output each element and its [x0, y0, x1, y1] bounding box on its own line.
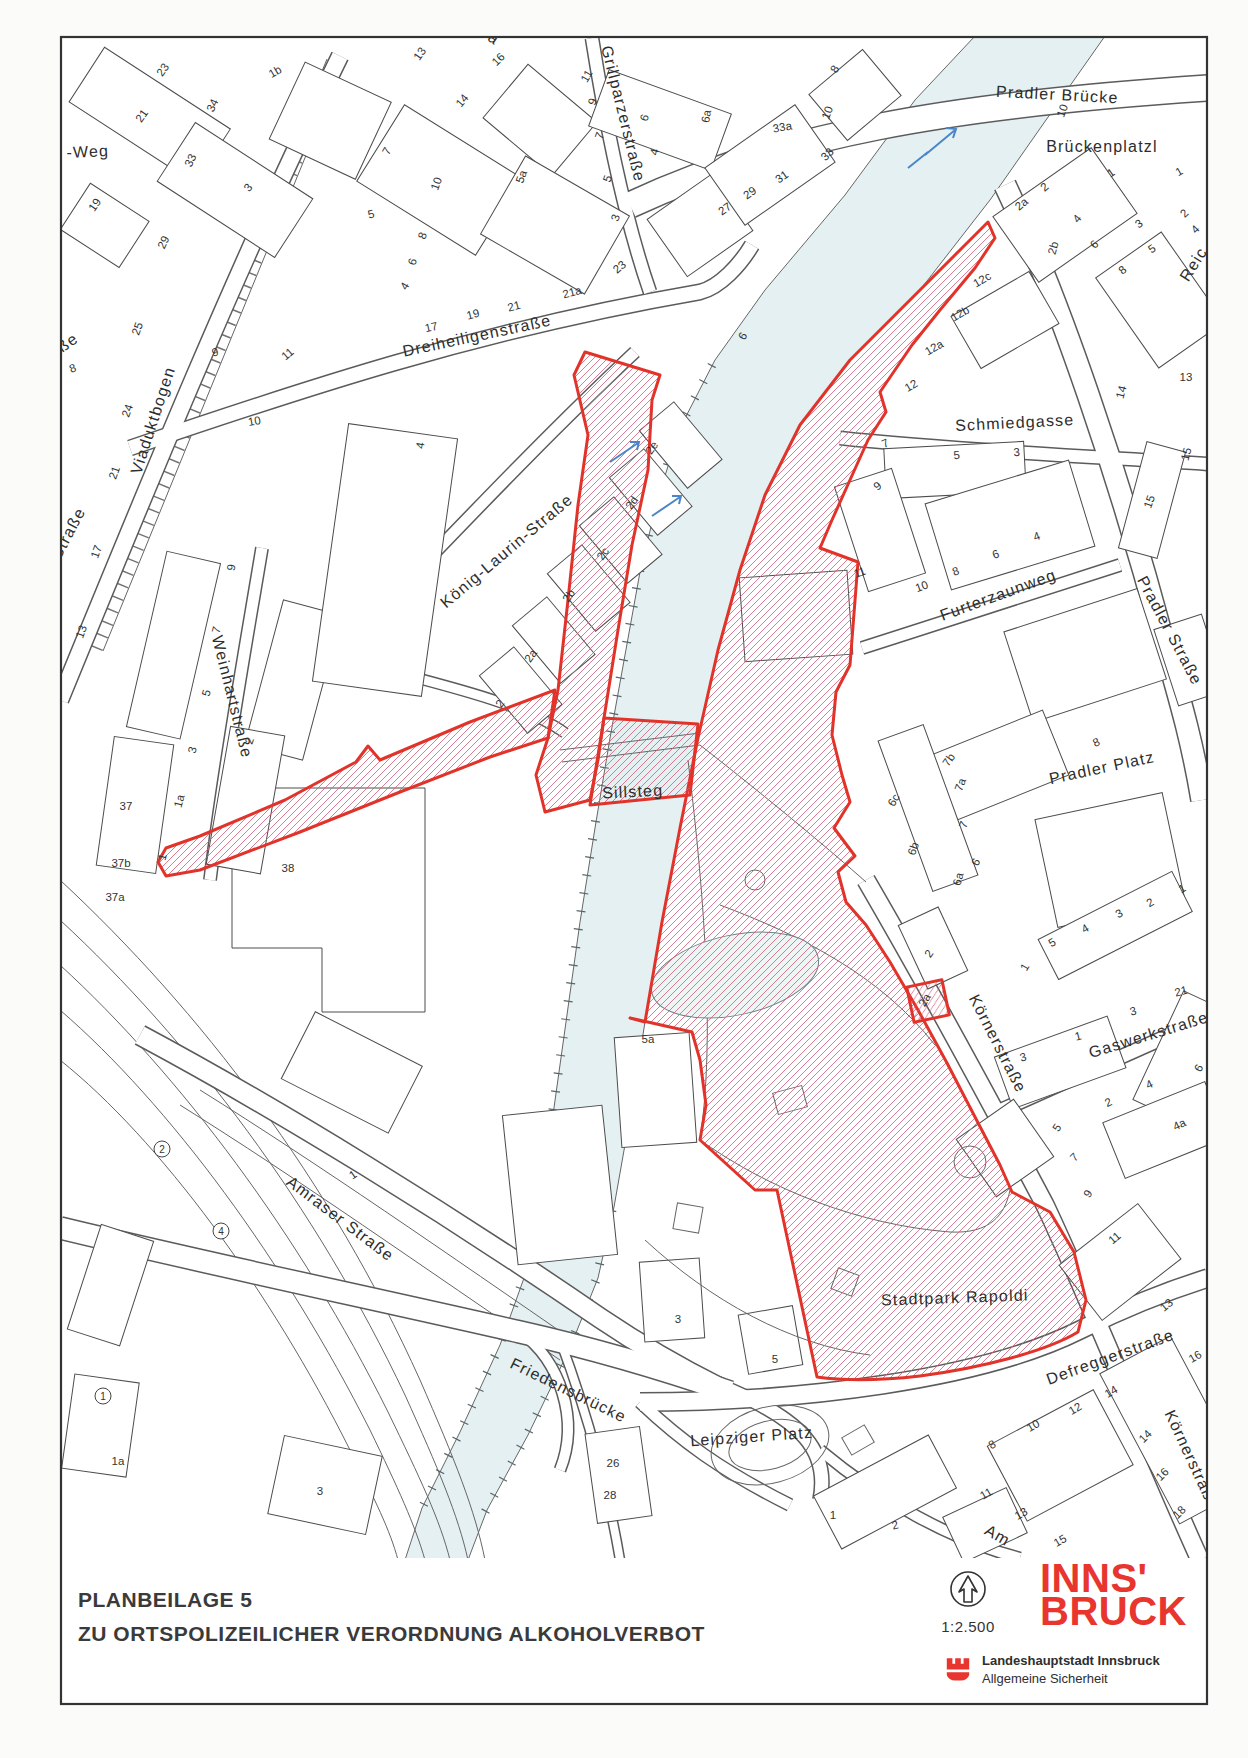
house-number: 5a — [642, 1033, 655, 1045]
plan-title-line2: ZU ORTSPOLIZEILICHER VERORDNUNG ALKOHOLV… — [78, 1622, 705, 1646]
agency-line2: Allgemeine Sicherheit — [982, 1670, 1160, 1688]
agency-text: Landeshauptstadt Innsbruck Allgemeine Si… — [982, 1652, 1160, 1687]
house-number: 3 — [317, 1485, 323, 1497]
street-label: Sillsteg — [602, 781, 664, 801]
street-label: Brückenplatzl — [1046, 138, 1158, 155]
house-number: 28 — [604, 1489, 617, 1501]
city-plan-map: Pradler BrückeBrückenplatzlSchmiedgasseF… — [0, 0, 1248, 1758]
logo-line2: BRUCK — [1040, 1595, 1187, 1628]
house-number: 26 — [607, 1457, 620, 1469]
house-number: 1 — [830, 1509, 836, 1521]
circled-number: 1 — [95, 1388, 111, 1404]
house-number: 5 — [953, 449, 960, 461]
innsbruck-logo: INNS' BRUCK — [1040, 1562, 1187, 1628]
house-number: 37a — [105, 891, 125, 903]
house-number: 3 — [675, 1313, 681, 1325]
circled-number-text: 2 — [159, 1144, 165, 1155]
circled-number-text: 1 — [100, 1391, 106, 1402]
circled-number: 2 — [154, 1141, 170, 1157]
agency-line1: Landeshauptstadt Innsbruck — [982, 1652, 1160, 1670]
house-number: 37b — [111, 857, 130, 869]
north-arrow-group: 1:2.500 — [928, 1566, 1008, 1635]
city-emblem-icon — [944, 1654, 972, 1682]
house-number: 38 — [282, 862, 295, 874]
circled-number: 4 — [213, 1223, 229, 1239]
street-label: -Weg — [66, 142, 110, 161]
footer-block: PLANBEILAGE 5 ZU ORTSPOLIZEILICHER VEROR… — [0, 1560, 1248, 1710]
house-number: 37 — [120, 800, 133, 812]
house-number: 5 — [772, 1353, 778, 1365]
scanned-plan-page: Pradler BrückeBrückenplatzlSchmiedgasseF… — [0, 0, 1248, 1758]
scale-label: 1:2.500 — [928, 1618, 1008, 1635]
house-number: 13 — [1180, 371, 1193, 383]
circled-number-text: 4 — [218, 1226, 224, 1237]
plan-title-line1: PLANBEILAGE 5 — [78, 1588, 253, 1612]
north-arrow-icon — [945, 1566, 991, 1612]
house-number: 1a — [112, 1455, 125, 1467]
house-number: 3 — [1013, 446, 1020, 458]
house-number: 10 — [247, 414, 262, 428]
